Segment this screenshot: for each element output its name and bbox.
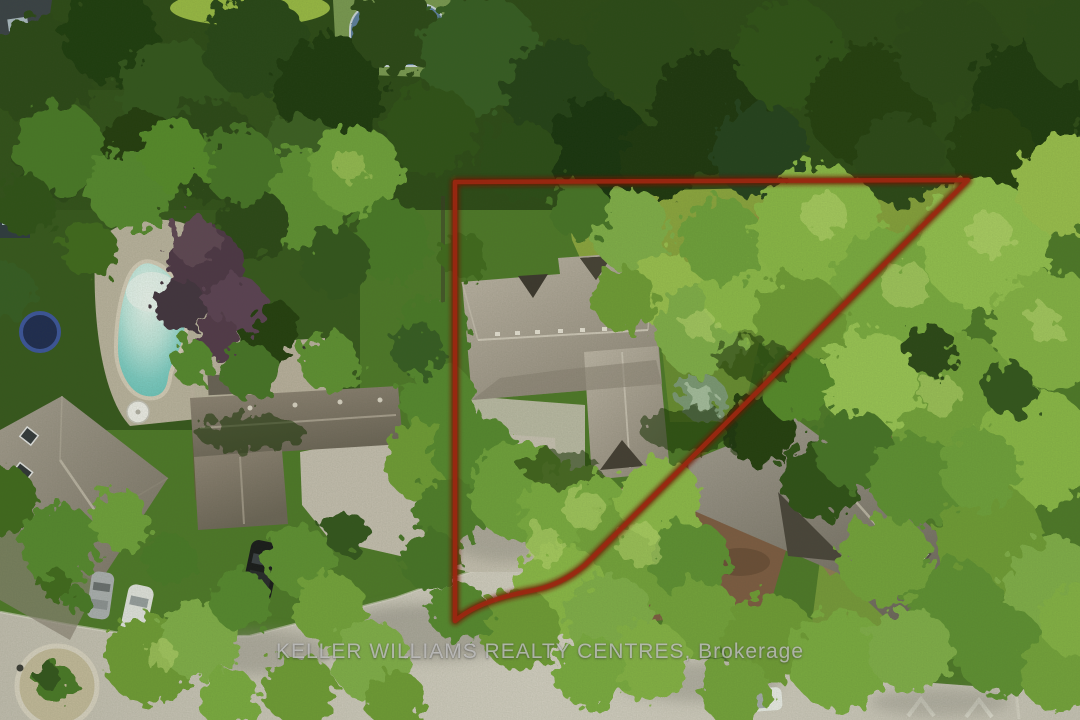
aerial-photo: KELLER WILLIAMS REALTY CENTRES, Brokerag… <box>0 0 1080 720</box>
photo-grain <box>0 0 1080 720</box>
aerial-photo-canvas <box>0 0 1080 720</box>
